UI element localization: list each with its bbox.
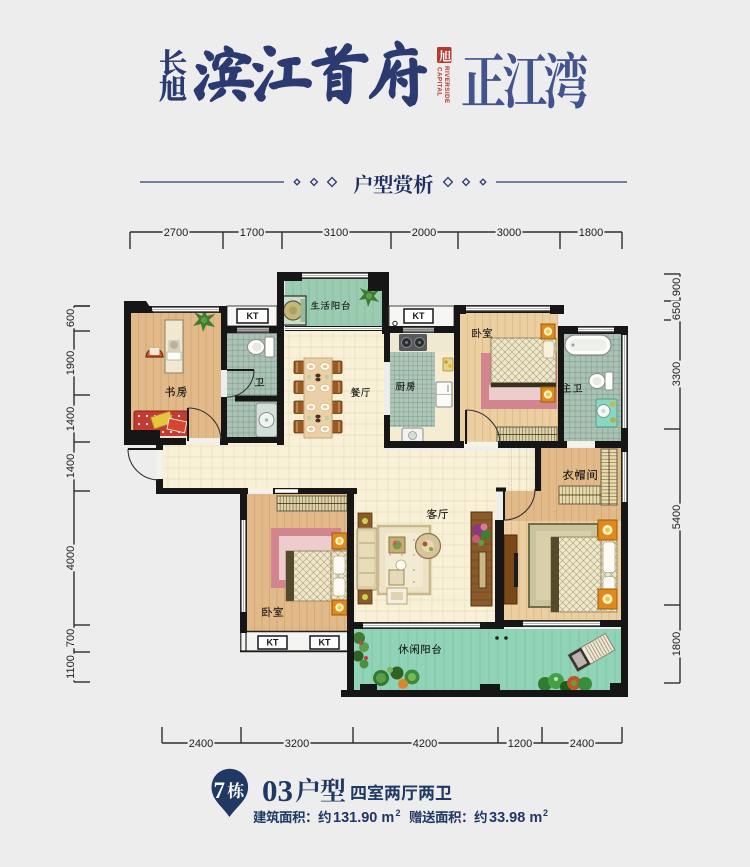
svg-text:131.90 m: 131.90 m	[333, 810, 394, 826]
svg-text:5400: 5400	[671, 505, 683, 529]
svg-text:2700: 2700	[164, 227, 188, 239]
svg-text:1100: 1100	[65, 655, 77, 679]
svg-text:650: 650	[671, 302, 683, 320]
svg-text:RIVERSIDE: RIVERSIDE	[443, 66, 450, 104]
svg-text:1400: 1400	[65, 407, 77, 431]
svg-text:1400: 1400	[65, 454, 77, 478]
svg-text:1800: 1800	[579, 227, 603, 239]
svg-text:1200: 1200	[508, 738, 532, 750]
svg-text:900: 900	[671, 278, 683, 296]
svg-text:2: 2	[543, 808, 548, 818]
svg-text:2000: 2000	[412, 227, 436, 239]
svg-text:7: 7	[214, 778, 226, 803]
svg-text:3000: 3000	[497, 227, 521, 239]
svg-text:2400: 2400	[570, 738, 594, 750]
svg-text:2: 2	[396, 808, 401, 818]
svg-text:3100: 3100	[324, 227, 348, 239]
svg-text:33.98 m: 33.98 m	[489, 810, 542, 826]
svg-text:KT: KT	[267, 638, 279, 648]
svg-text:4000: 4000	[65, 546, 77, 570]
svg-text:1700: 1700	[240, 227, 264, 239]
svg-text:3200: 3200	[285, 738, 309, 750]
svg-text:KT: KT	[247, 311, 259, 321]
svg-text:1800: 1800	[671, 632, 683, 656]
svg-text:KT: KT	[319, 638, 331, 648]
svg-text:2400: 2400	[189, 738, 213, 750]
svg-text:CAPITAL: CAPITAL	[436, 67, 443, 97]
svg-text:4200: 4200	[413, 738, 437, 750]
svg-text:3300: 3300	[671, 362, 683, 386]
svg-text:03: 03	[262, 773, 293, 808]
svg-text:1900: 1900	[65, 351, 77, 375]
svg-text:600: 600	[65, 309, 77, 327]
svg-text:700: 700	[65, 629, 77, 647]
svg-text:KT: KT	[413, 311, 425, 321]
